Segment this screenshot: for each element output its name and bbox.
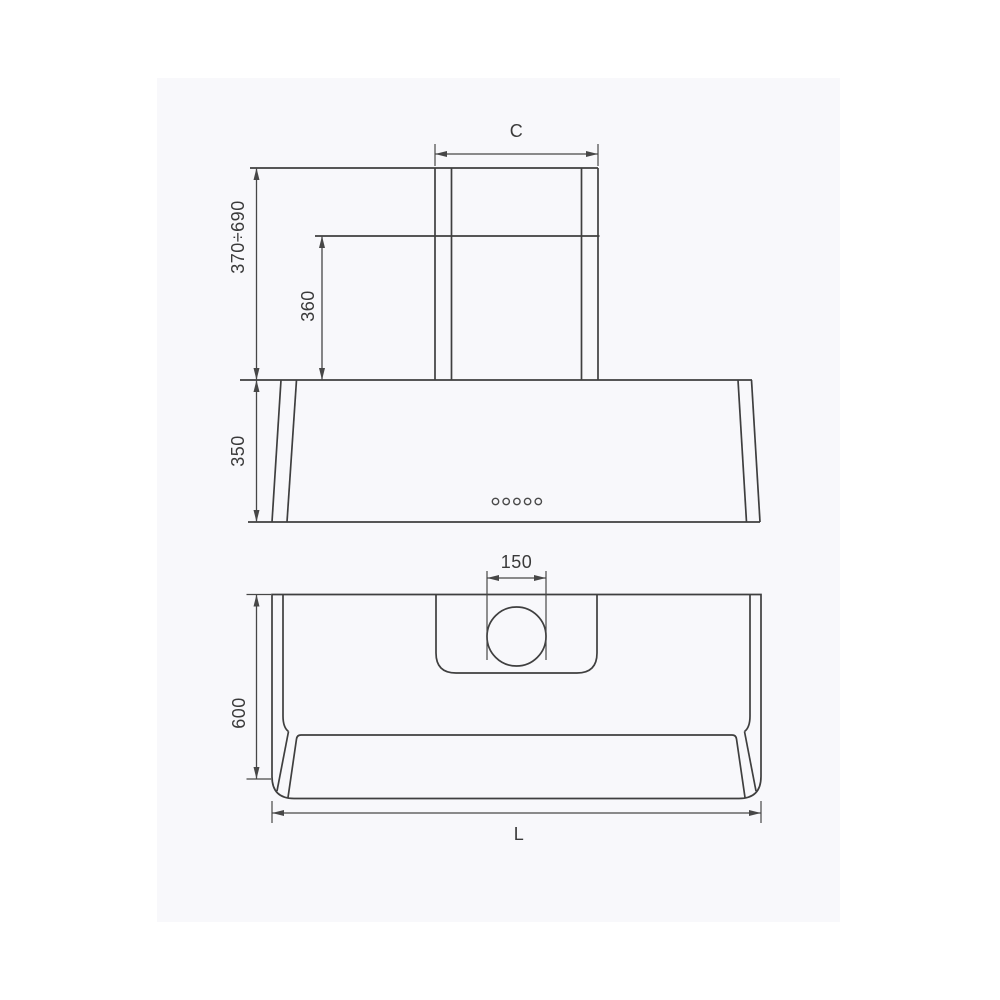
dimension-drawing: C 370÷690 360 350: [0, 0, 1000, 1000]
dim-label-chimney-height-range: 370÷690: [228, 200, 248, 273]
dim-label-body-depth: 600: [229, 697, 249, 729]
page: C 370÷690 360 350: [0, 0, 1000, 1000]
dim-label-chimney-lower-height: 360: [298, 290, 318, 322]
dim-label-body-width: L: [514, 824, 525, 844]
dim-label-body-height: 350: [228, 435, 248, 467]
dim-label-duct-diameter: 150: [501, 552, 533, 572]
dim-label-chimney-width: C: [510, 121, 524, 141]
